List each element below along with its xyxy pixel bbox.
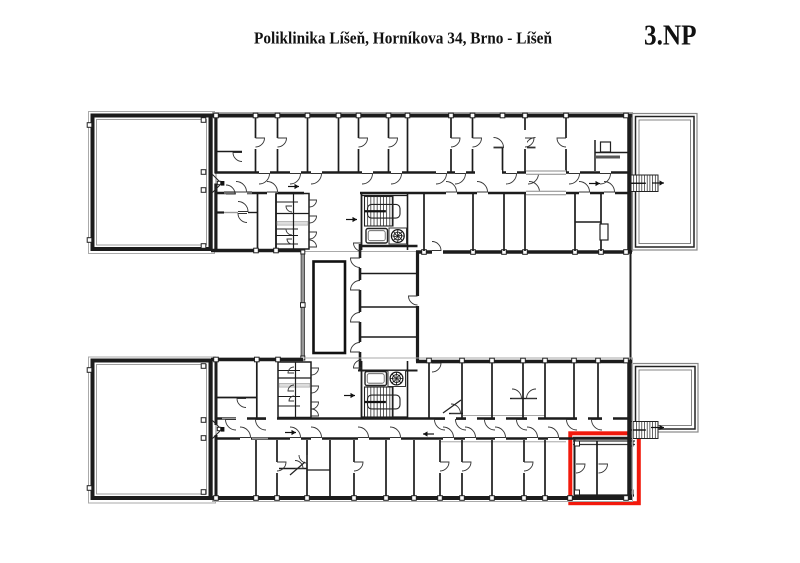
svg-text:3.NP: 3.NP: [644, 21, 697, 52]
svg-text:Poliklinika Líšeň, Horníkova 3: Poliklinika Líšeň, Horníkova 34, Brno - …: [254, 29, 552, 48]
